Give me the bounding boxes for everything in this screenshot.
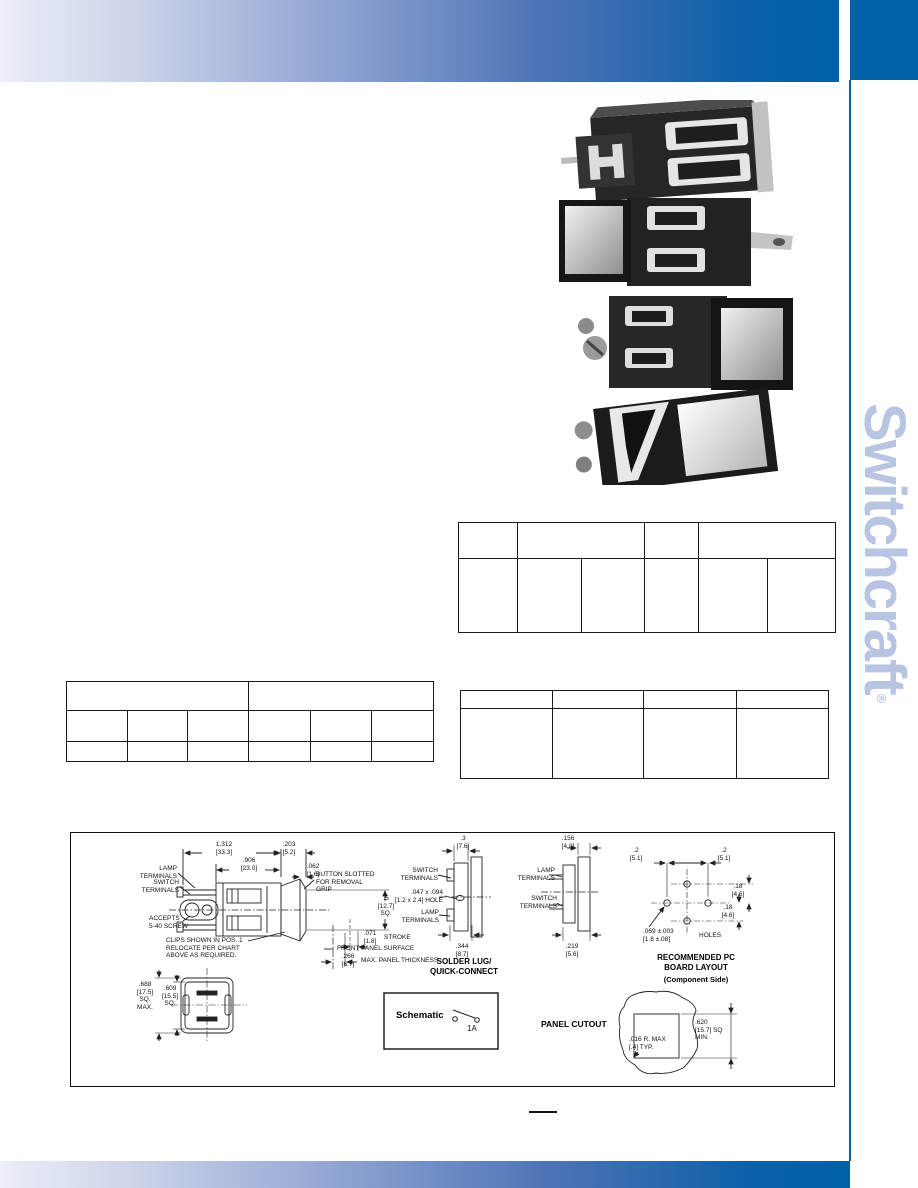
dim-pcb-v2: .18 [4.6] <box>716 904 740 919</box>
photo-switch-front-button <box>578 296 793 390</box>
table-cell <box>459 559 518 633</box>
registered-mark: ® <box>874 694 889 704</box>
spec-table-top <box>458 522 836 633</box>
footer-bar <box>0 1161 850 1188</box>
dim-pcb-v1: .18 [4.6] <box>726 883 750 898</box>
table-cell <box>372 742 434 762</box>
sidebar-top-block <box>850 0 918 80</box>
dim-pc-depth: .219 [5.6] <box>559 943 585 958</box>
lug-lamp-terminals-label: LAMP TERMINALS <box>395 909 439 924</box>
pcb-holes-dim: .069 ±.003 [1.8 ±.08] <box>643 928 697 943</box>
dim-pcb-left: .2 [5.1] <box>623 847 649 862</box>
schematic-drawing <box>384 993 498 1049</box>
accepts-screw-note: ACCEPTS 5-40 SCREW <box>149 915 197 930</box>
table-cell <box>699 523 836 559</box>
table-cell <box>553 709 644 779</box>
schematic-label: Schematic <box>396 1010 458 1021</box>
table-cell <box>644 691 737 709</box>
pcb-caption-sub: (Component Side) <box>629 975 763 985</box>
pcb-caption: RECOMMENDED PC BOARD LAYOUT <box>629 953 763 974</box>
table-cell <box>737 691 829 709</box>
lug-hole-note: .047 x .094 [1.2 x 2.4] HOLE <box>387 889 443 904</box>
spec-table-left <box>66 681 434 762</box>
panel-cutout-label: PANEL CUTOUT <box>541 1019 631 1029</box>
table-cell <box>699 559 768 633</box>
table-cell <box>188 711 249 742</box>
dim-pcb-right: .2 [5.1] <box>711 847 737 862</box>
drawings-panel: 1.312 [33.3] .203 [5.2] .906 [23.0] .062… <box>70 832 835 1087</box>
table-cell <box>518 559 582 633</box>
dim-body-outer: .688 [17.5] SQ. MAX. <box>133 981 157 1012</box>
table-cell <box>127 742 188 762</box>
table-cell <box>518 523 645 559</box>
table-cell <box>645 523 699 559</box>
table-cell <box>310 742 372 762</box>
dim-pc-flange: .156 [4.0] <box>555 835 581 850</box>
table-cell <box>767 559 836 633</box>
front-panel-label: FRONT PANEL SURFACE <box>337 945 437 953</box>
table-cell <box>581 559 645 633</box>
pcb-holes-label: HOLES <box>699 932 731 940</box>
dim-cutout-radius: .016 R. MAX [.4] TYP. <box>629 1036 683 1051</box>
product-photo <box>555 100 850 485</box>
table-cell <box>737 709 829 779</box>
table-cell <box>459 523 518 559</box>
header-bar <box>0 0 839 82</box>
schematic-rating: 1A <box>463 1024 481 1033</box>
pcb-layout-drawing <box>649 863 753 935</box>
lug-switch-terminals-label: SWITCH TERMINALS <box>394 867 438 882</box>
table-cell <box>553 691 644 709</box>
table-cell <box>188 742 249 762</box>
clips-note: CLIPS SHOWN IN POS. 1 RELOCATE PER CHART… <box>166 937 248 960</box>
pc-switch-terminals-label: SWITCH TERMINALS <box>509 895 557 910</box>
button-slotted-note: BUTTON SLOTTED FOR REMOVAL GRIP <box>316 871 378 894</box>
table-cell <box>249 682 434 711</box>
dim-body-depth: .906 [23.0] <box>229 857 269 872</box>
dim-lug-width: .3 [7.6] <box>450 835 476 850</box>
footer-divider-dash <box>529 1111 557 1113</box>
table-cell <box>372 711 434 742</box>
table-cell <box>67 682 249 711</box>
table-cell <box>461 709 553 779</box>
photo-switch-tilted-button <box>569 388 778 485</box>
dim-stroke: .071 [1.8] <box>358 930 382 945</box>
table-cell <box>310 711 372 742</box>
pc-lamp-terminals-label: LAMP TERMINALS <box>511 867 555 882</box>
solder-lug-caption: SOLDER LUG/ QUICK-CONNECT <box>421 957 507 978</box>
brand-name: Switchcraft <box>852 403 917 694</box>
table-cell <box>644 709 737 779</box>
photo-switch-side-button <box>559 198 793 286</box>
table-cell <box>67 711 128 742</box>
photo-switch-rear-view <box>558 100 774 206</box>
table-cell <box>249 742 311 762</box>
table-cell <box>127 711 188 742</box>
dim-button-depth: .203 [5.2] <box>274 841 304 856</box>
dim-panel-thickness: .266 [6.7] <box>337 953 359 968</box>
table-cell <box>249 711 311 742</box>
dim-body-inner: .609 [15.5] SQ. <box>159 985 181 1008</box>
brand-vertical-text: Switchcraft® <box>850 403 916 801</box>
pc-terminals-drawing <box>541 843 601 941</box>
dim-total-width: 1.312 [33.3] <box>201 841 247 856</box>
switch-terminals-label: SWITCH TERMINALS <box>135 879 179 894</box>
dim-cutout-square: .620 [15.7] SQ MIN. <box>695 1019 729 1042</box>
table-cell <box>461 691 553 709</box>
table-cell <box>67 742 128 762</box>
table-cell <box>645 559 699 633</box>
solder-lug-drawing <box>438 845 491 941</box>
spec-table-right <box>460 690 829 779</box>
catalog-page: Switchcraft® <box>0 0 918 1188</box>
stroke-label: STROKE <box>384 934 420 942</box>
